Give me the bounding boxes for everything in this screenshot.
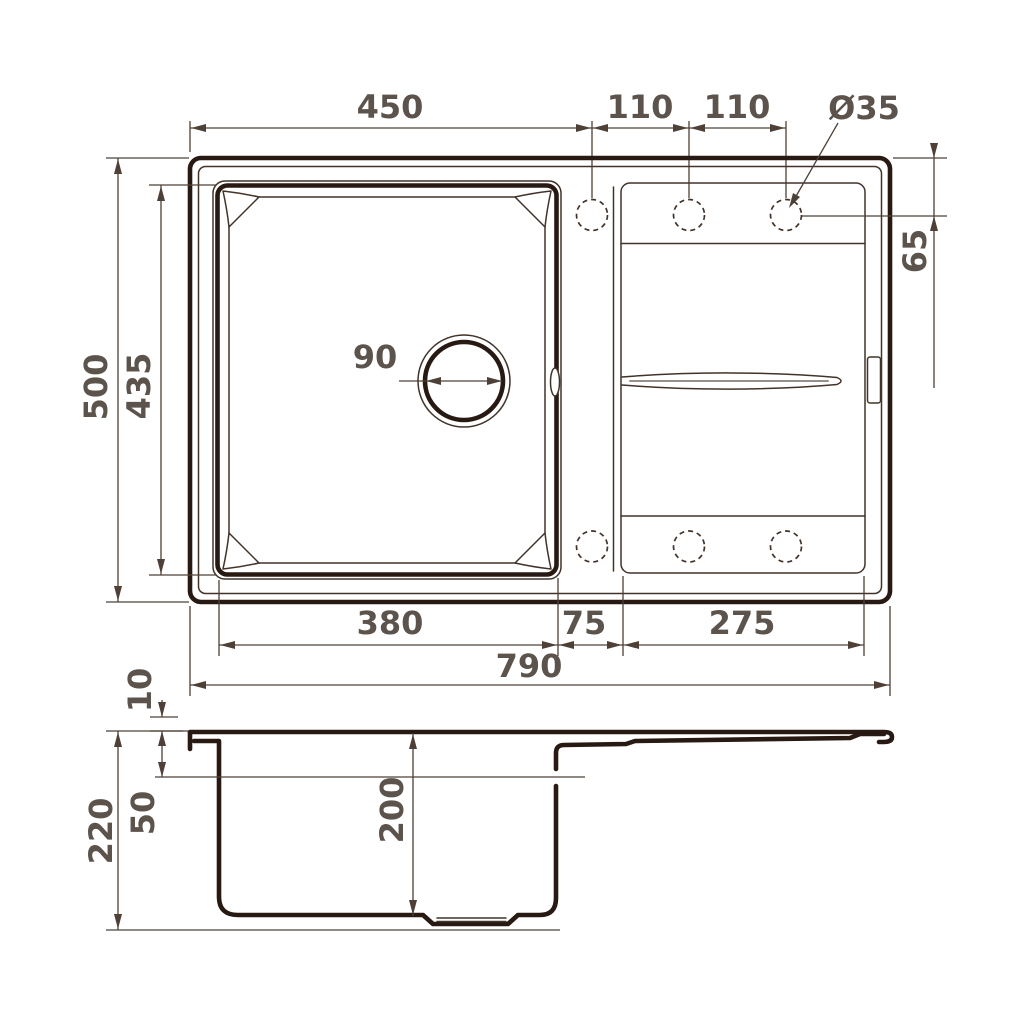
bowl-overflow-notch	[551, 368, 560, 396]
dim-label-380: 380	[357, 604, 424, 642]
dim-label-275: 275	[709, 604, 776, 642]
dim-200: 200	[373, 733, 417, 916]
tap-hole-bottom-2	[674, 531, 705, 562]
tap-hole-bottom-3	[771, 531, 802, 562]
dim-label-10: 10	[121, 668, 159, 713]
dim-label-65: 65	[896, 229, 934, 274]
dim-label-220: 220	[82, 798, 120, 865]
side-view	[190, 732, 892, 924]
tap-hole-top-3	[771, 200, 802, 231]
dim-label-110-right: 110	[704, 88, 771, 126]
dim-label-50: 50	[124, 791, 162, 836]
rim-overflow-slot	[868, 357, 881, 403]
dim-label-790: 790	[496, 647, 563, 685]
top-view	[199, 167, 882, 594]
dim-label-450: 450	[357, 88, 424, 126]
dim-label-435: 435	[120, 353, 158, 420]
drainboard-groove	[622, 373, 841, 389]
dim-110-right: 110	[689, 88, 786, 132]
sink-technical-drawing-page: 450 110 110 Ø35 500 435 65	[0, 0, 1024, 1024]
dim-label-75: 75	[562, 604, 607, 642]
tap-hole-bottom-1	[577, 531, 608, 562]
dim-50: 50	[124, 731, 585, 835]
dim-10: 10	[121, 668, 188, 746]
dim-65: 65	[802, 143, 947, 388]
bowl-edge	[218, 186, 557, 575]
dim-label-90: 90	[353, 338, 398, 376]
sink-dimension-drawing: 450 110 110 Ø35 500 435 65	[0, 0, 1024, 1024]
dim-435: 435	[120, 185, 216, 575]
dim-110-left: 110	[592, 88, 689, 132]
dim-label-200: 200	[373, 777, 411, 844]
side-drain-flange	[437, 918, 506, 922]
dim-label-110-left: 110	[607, 88, 674, 126]
tap-hole-top-2	[674, 200, 705, 231]
dim-450: 450	[190, 88, 592, 132]
dim-hole-diameter: Ø35	[789, 89, 900, 208]
side-drainboard-slope	[556, 734, 884, 769]
dim-790: 790	[190, 606, 890, 696]
dim-label-500: 500	[77, 354, 115, 421]
tap-hole-top-1	[577, 200, 608, 231]
dim-label-d35: Ø35	[828, 89, 900, 127]
dim-380-75-275: 380 75 275	[219, 576, 864, 656]
drainboard-panel	[621, 183, 865, 573]
bowl-outer-outline	[213, 181, 561, 579]
